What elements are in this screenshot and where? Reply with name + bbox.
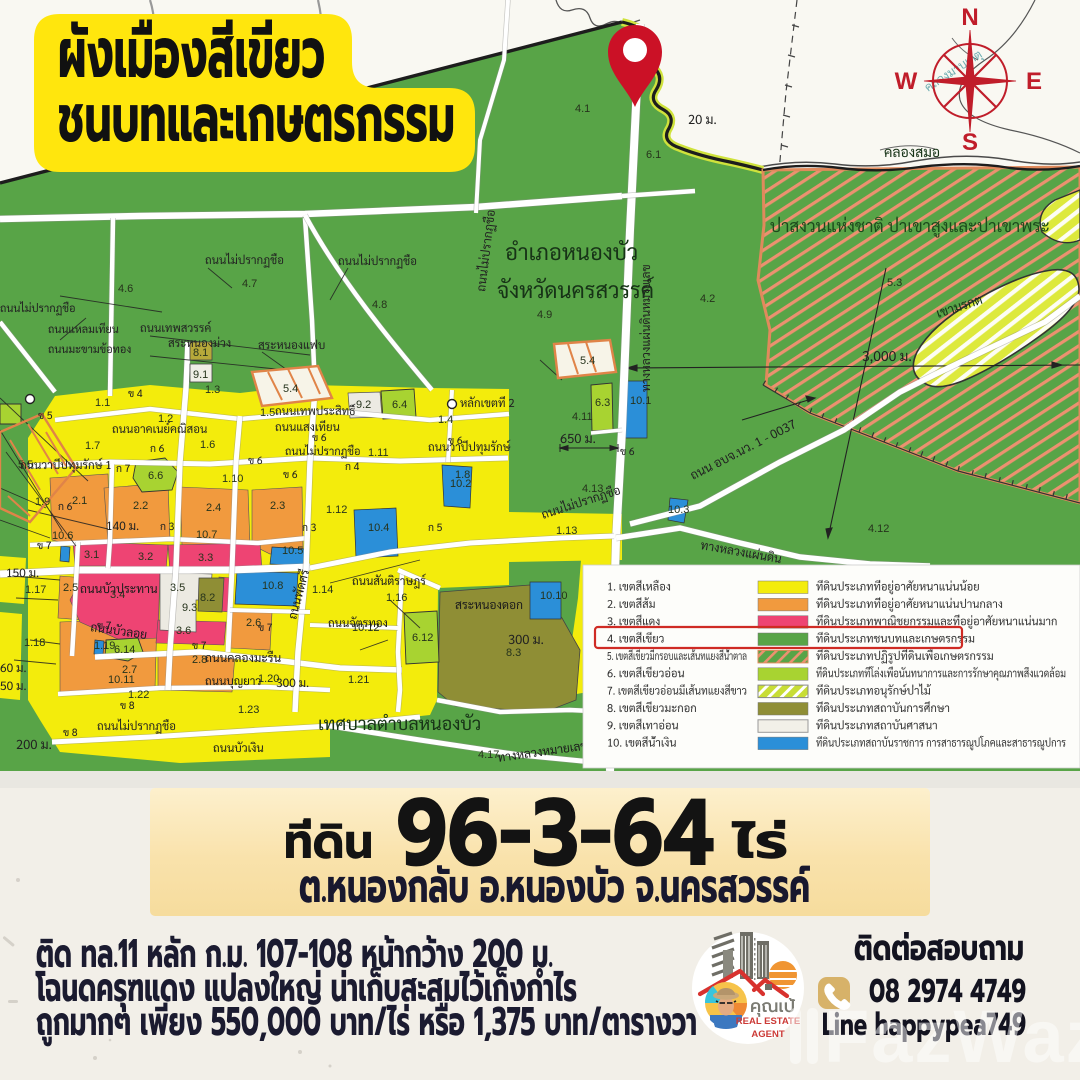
svg-text:1.3: 1.3 [205, 384, 220, 396]
svg-text:10.11: 10.11 [108, 674, 135, 686]
svg-text:3.6: 3.6 [176, 625, 191, 637]
svg-text:4.11: 4.11 [572, 411, 593, 423]
svg-text:8.1: 8.1 [193, 347, 208, 359]
svg-text:2.4: 2.4 [206, 502, 221, 514]
svg-text:AGENT: AGENT [751, 1029, 784, 1040]
svg-text:1.16: 1.16 [386, 592, 407, 604]
svg-text:6.4: 6.4 [392, 399, 407, 411]
svg-text:FazWaz: FazWaz [824, 995, 1080, 1078]
svg-text:4.17: 4.17 [478, 749, 499, 761]
svg-text:10.12: 10.12 [352, 622, 380, 634]
svg-text:8.2: 8.2 [200, 592, 215, 604]
svg-text:2.1: 2.1 [72, 495, 87, 507]
svg-text:4.9: 4.9 [537, 309, 552, 321]
svg-text:6.12: 6.12 [412, 632, 433, 644]
svg-text:6.14: 6.14 [114, 644, 135, 656]
svg-text:1.17: 1.17 [25, 584, 46, 596]
svg-text:10.3: 10.3 [668, 504, 689, 516]
svg-text:1.18: 1.18 [24, 637, 45, 649]
svg-text:1.1: 1.1 [95, 397, 110, 409]
svg-text:4.6: 4.6 [118, 283, 133, 295]
svg-text:2.3: 2.3 [270, 500, 285, 512]
svg-text:3.3: 3.3 [198, 552, 213, 564]
svg-text:2.5: 2.5 [63, 582, 78, 594]
svg-text:4.13: 4.13 [582, 483, 603, 495]
svg-text:6.1: 6.1 [646, 149, 661, 161]
svg-text:6.6: 6.6 [148, 470, 163, 482]
svg-text:2.2: 2.2 [133, 500, 148, 512]
svg-text:1.12: 1.12 [326, 504, 347, 516]
svg-text:10.6: 10.6 [52, 530, 73, 542]
svg-text:1.5: 1.5 [260, 407, 275, 419]
svg-text:3.5: 3.5 [170, 582, 185, 594]
svg-text:9.1: 9.1 [193, 369, 208, 381]
svg-text:1.6: 1.6 [200, 439, 215, 451]
svg-text:1.9: 1.9 [35, 496, 50, 508]
svg-text:4.2: 4.2 [700, 293, 715, 305]
svg-text:5.3: 5.3 [887, 277, 902, 289]
svg-text:10.2: 10.2 [450, 478, 471, 490]
svg-text:1.7: 1.7 [85, 440, 100, 452]
svg-text:1.21: 1.21 [348, 674, 369, 686]
svg-text:10.10: 10.10 [540, 590, 568, 602]
svg-text:10.4: 10.4 [368, 522, 389, 534]
svg-text:4.7: 4.7 [242, 278, 257, 290]
svg-text:10.5: 10.5 [282, 545, 303, 557]
svg-text:4.12: 4.12 [868, 523, 889, 535]
svg-text:1.10: 1.10 [222, 473, 243, 485]
svg-text:4.1: 4.1 [575, 103, 590, 115]
svg-text:1.2: 1.2 [158, 413, 173, 425]
svg-text:1.14: 1.14 [312, 584, 333, 596]
svg-text:1.4: 1.4 [438, 414, 453, 426]
svg-text:10.8: 10.8 [262, 580, 283, 592]
svg-text:6.3: 6.3 [595, 397, 610, 409]
svg-text:10.1: 10.1 [630, 395, 651, 407]
svg-text:W: W [895, 68, 918, 95]
svg-text:5.4: 5.4 [580, 355, 595, 367]
svg-text:4.8: 4.8 [372, 299, 387, 311]
svg-text:5.4: 5.4 [283, 383, 298, 395]
svg-text:3.1: 3.1 [84, 549, 99, 561]
svg-text:8.3: 8.3 [506, 647, 521, 659]
svg-text:1.22: 1.22 [128, 689, 149, 701]
svg-text:1.19: 1.19 [94, 640, 115, 652]
svg-text:1.23: 1.23 [238, 704, 259, 716]
svg-text:1.20: 1.20 [258, 673, 279, 685]
svg-text:9.2: 9.2 [356, 399, 371, 411]
svg-text:N: N [961, 4, 978, 31]
svg-text:S: S [962, 129, 978, 156]
svg-text:1.11: 1.11 [368, 447, 389, 459]
svg-text:E: E [1026, 68, 1042, 95]
svg-text:10.7: 10.7 [196, 529, 217, 541]
svg-text:9.3: 9.3 [182, 602, 197, 614]
svg-text:2.8: 2.8 [192, 654, 207, 666]
svg-text:1.13: 1.13 [556, 525, 577, 537]
svg-text:3.2: 3.2 [138, 551, 153, 563]
